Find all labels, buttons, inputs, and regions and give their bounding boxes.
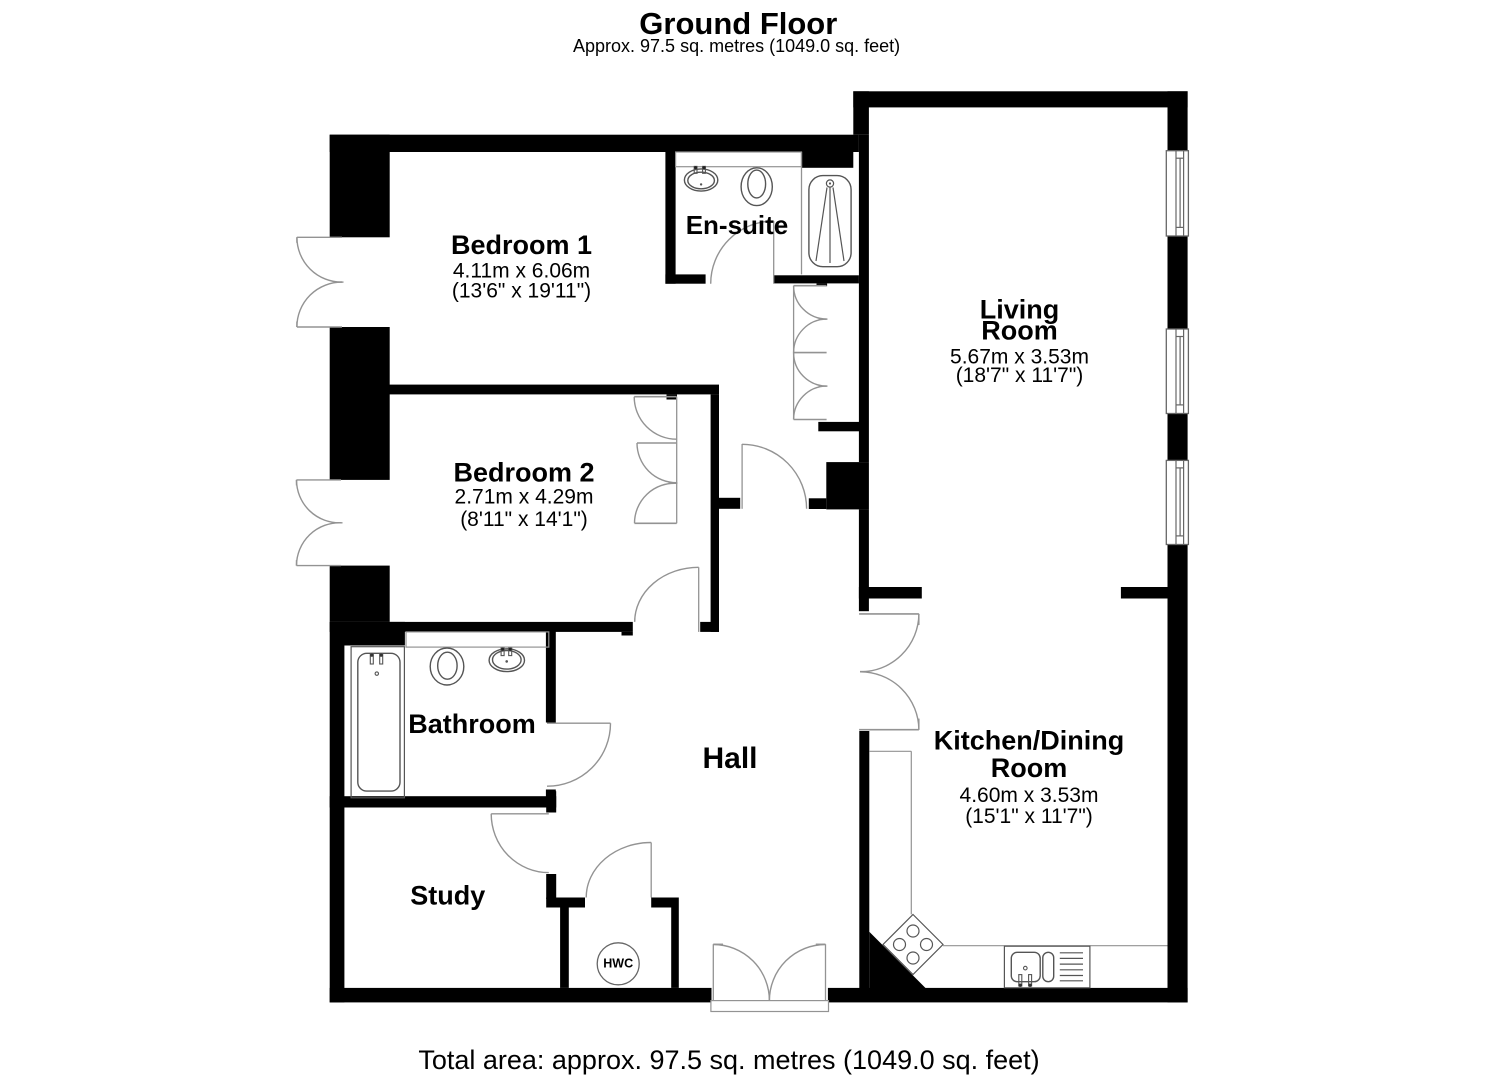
svg-text:Room: Room (981, 316, 1058, 346)
svg-text:Approx. 97.5 sq. metres (1049.: Approx. 97.5 sq. metres (1049.0 sq. feet… (573, 36, 900, 56)
svg-text:Bathroom: Bathroom (408, 709, 536, 739)
svg-text:Room: Room (991, 753, 1068, 783)
svg-text:4.60m x 3.53m: 4.60m x 3.53m (960, 784, 1099, 807)
svg-text:Bedroom 2: Bedroom 2 (453, 458, 594, 488)
svg-text:(8'11" x 14'1"): (8'11" x 14'1") (460, 508, 588, 531)
svg-text:(13'6" x 19'11"): (13'6" x 19'11") (452, 280, 591, 303)
svg-text:Bedroom 1: Bedroom 1 (451, 230, 592, 260)
svg-text:Kitchen/Dining: Kitchen/Dining (934, 726, 1125, 756)
svg-text:Total area: approx. 97.5 sq. m: Total area: approx. 97.5 sq. metres (104… (418, 1045, 1039, 1075)
svg-text:Study: Study (410, 880, 485, 910)
svg-text:2.71m x 4.29m: 2.71m x 4.29m (455, 485, 594, 508)
svg-text:HWC: HWC (603, 957, 633, 971)
svg-text:(15'1" x 11'7"): (15'1" x 11'7") (965, 805, 1093, 828)
svg-text:Hall: Hall (702, 742, 757, 775)
svg-text:(18'7" x 11'7"): (18'7" x 11'7") (956, 364, 1084, 387)
svg-text:En-suite: En-suite (686, 210, 789, 240)
